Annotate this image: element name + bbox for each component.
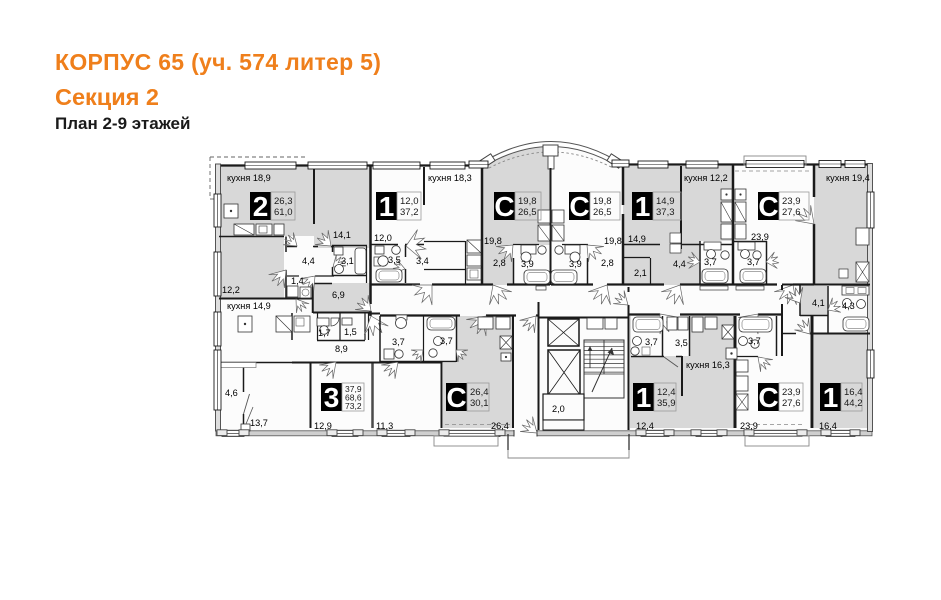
svg-text:1: 1 — [379, 191, 395, 222]
svg-text:4,3: 4,3 — [842, 301, 855, 311]
svg-text:2,8: 2,8 — [601, 258, 614, 268]
svg-text:26,5: 26,5 — [593, 207, 612, 218]
svg-text:23,9: 23,9 — [782, 196, 801, 207]
svg-text:С: С — [758, 191, 778, 222]
svg-text:3,7: 3,7 — [645, 337, 658, 347]
svg-text:12,4: 12,4 — [657, 387, 676, 398]
svg-text:4,1: 4,1 — [812, 298, 825, 308]
svg-text:С: С — [569, 191, 589, 222]
svg-text:кухня 14,9: кухня 14,9 — [227, 301, 271, 311]
svg-text:73,2: 73,2 — [345, 401, 362, 411]
svg-text:2,1: 2,1 — [634, 268, 647, 278]
svg-text:12,0: 12,0 — [374, 233, 392, 243]
svg-text:2,0: 2,0 — [552, 404, 565, 414]
svg-text:27,6: 27,6 — [782, 207, 801, 218]
svg-text:26,4: 26,4 — [491, 421, 509, 431]
svg-text:3,1: 3,1 — [341, 256, 354, 266]
svg-text:8,9: 8,9 — [335, 344, 348, 354]
svg-text:3,7: 3,7 — [704, 257, 717, 267]
svg-text:кухня 12,2: кухня 12,2 — [684, 173, 728, 183]
svg-text:3,5: 3,5 — [388, 255, 401, 265]
svg-text:16,4: 16,4 — [844, 387, 863, 398]
svg-text:23,9: 23,9 — [751, 232, 769, 242]
svg-text:61,0: 61,0 — [274, 207, 293, 218]
svg-text:35,9: 35,9 — [657, 398, 676, 409]
svg-text:кухня 16,3: кухня 16,3 — [686, 360, 730, 370]
svg-text:27,6: 27,6 — [782, 398, 801, 409]
svg-text:3,9: 3,9 — [521, 259, 534, 269]
svg-text:12,4: 12,4 — [636, 421, 654, 431]
svg-text:3,7: 3,7 — [748, 336, 761, 346]
svg-text:кухня 18,9: кухня 18,9 — [227, 173, 271, 183]
svg-text:1,5: 1,5 — [344, 327, 357, 337]
svg-text:19,8: 19,8 — [518, 196, 537, 207]
svg-text:16,4: 16,4 — [819, 421, 837, 431]
svg-text:12,9: 12,9 — [314, 421, 332, 431]
svg-text:3,7: 3,7 — [392, 337, 405, 347]
svg-text:3,7: 3,7 — [747, 257, 760, 267]
svg-text:С: С — [494, 191, 514, 222]
svg-text:19,8: 19,8 — [484, 236, 502, 246]
svg-text:12,2: 12,2 — [222, 285, 240, 295]
svg-text:1: 1 — [636, 382, 652, 413]
svg-text:2: 2 — [253, 191, 269, 222]
svg-text:2,8: 2,8 — [493, 258, 506, 268]
svg-text:кухня 19,4: кухня 19,4 — [826, 173, 870, 183]
svg-text:1,4: 1,4 — [291, 276, 304, 286]
svg-text:С: С — [446, 382, 466, 413]
svg-text:30,1: 30,1 — [470, 398, 489, 409]
svg-text:1,7: 1,7 — [318, 328, 331, 338]
svg-text:37,2: 37,2 — [400, 207, 419, 218]
svg-text:3: 3 — [324, 382, 340, 413]
svg-text:26,3: 26,3 — [274, 196, 293, 207]
svg-text:3,7: 3,7 — [440, 336, 453, 346]
svg-text:6,9: 6,9 — [332, 290, 345, 300]
svg-text:11,3: 11,3 — [376, 421, 393, 431]
svg-text:4,4: 4,4 — [302, 256, 315, 266]
svg-text:26,5: 26,5 — [518, 207, 537, 218]
svg-text:13,7: 13,7 — [250, 418, 268, 428]
svg-text:С: С — [758, 382, 778, 413]
svg-text:14,1: 14,1 — [333, 230, 351, 240]
svg-text:19,8: 19,8 — [604, 236, 622, 246]
svg-text:23,9: 23,9 — [740, 421, 758, 431]
svg-text:1: 1 — [635, 191, 651, 222]
svg-text:14,9: 14,9 — [656, 196, 675, 207]
svg-text:1: 1 — [823, 382, 839, 413]
svg-text:3,4: 3,4 — [416, 256, 429, 266]
svg-text:44,2: 44,2 — [844, 398, 863, 409]
svg-text:26,4: 26,4 — [470, 387, 489, 398]
svg-text:3,9: 3,9 — [569, 259, 582, 269]
svg-text:23,9: 23,9 — [782, 387, 801, 398]
svg-text:4,4: 4,4 — [673, 259, 686, 269]
svg-text:12,0: 12,0 — [400, 196, 419, 207]
svg-text:14,9: 14,9 — [628, 234, 646, 244]
svg-text:3,5: 3,5 — [675, 338, 688, 348]
svg-text:19,8: 19,8 — [593, 196, 612, 207]
svg-text:4,6: 4,6 — [225, 388, 238, 398]
svg-text:37,3: 37,3 — [656, 207, 675, 218]
svg-text:кухня 18,3: кухня 18,3 — [428, 173, 472, 183]
